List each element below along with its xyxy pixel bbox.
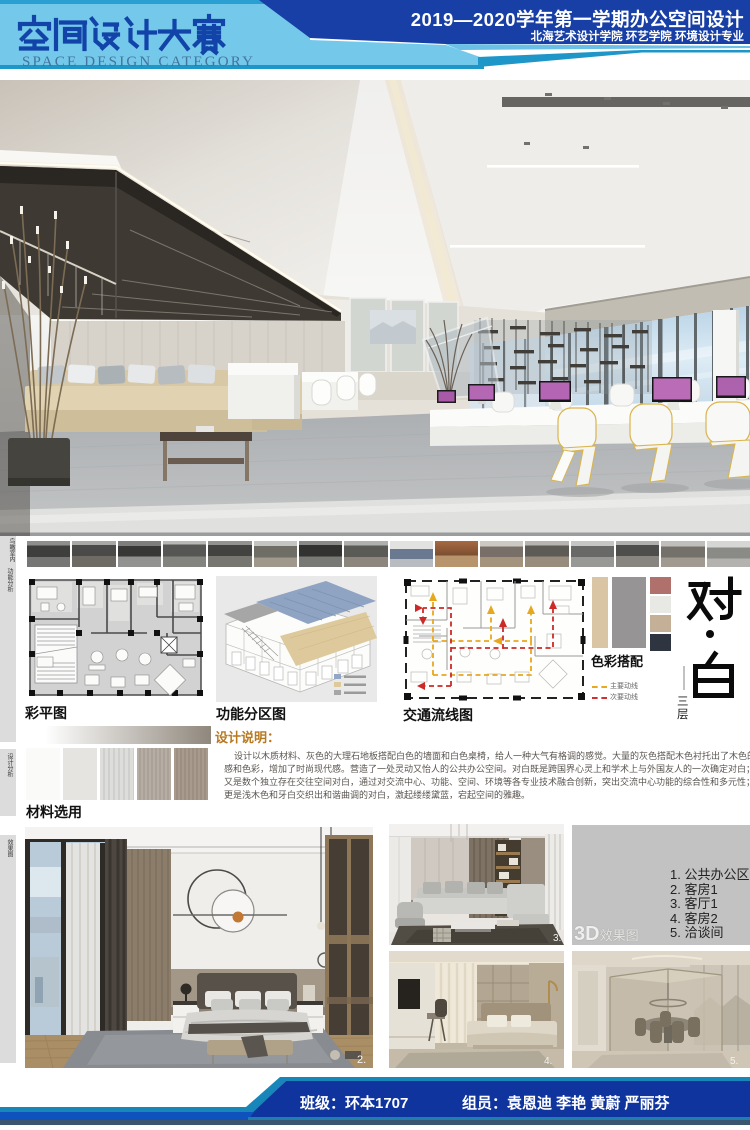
svg-text:3.: 3.	[553, 933, 561, 944]
svg-text:三: 三	[677, 696, 689, 708]
svg-text:2.: 2.	[357, 1054, 366, 1066]
svg-text:层: 层	[677, 708, 689, 721]
svg-text:SPACE DESIGN CATEGORY: SPACE DESIGN CATEGORY	[22, 54, 255, 70]
svg-text:5.: 5.	[730, 1056, 738, 1067]
svg-text:4.: 4.	[544, 1056, 552, 1067]
